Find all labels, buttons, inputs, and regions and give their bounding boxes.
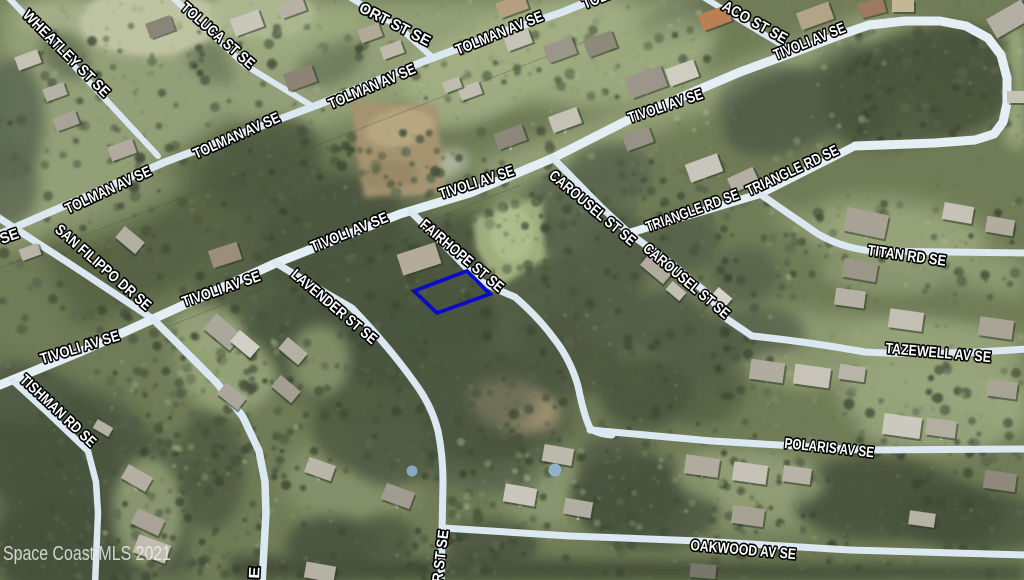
svg-text:E: E — [246, 566, 264, 579]
svg-text:Space Coast MLS 2021: Space Coast MLS 2021 — [3, 543, 171, 565]
